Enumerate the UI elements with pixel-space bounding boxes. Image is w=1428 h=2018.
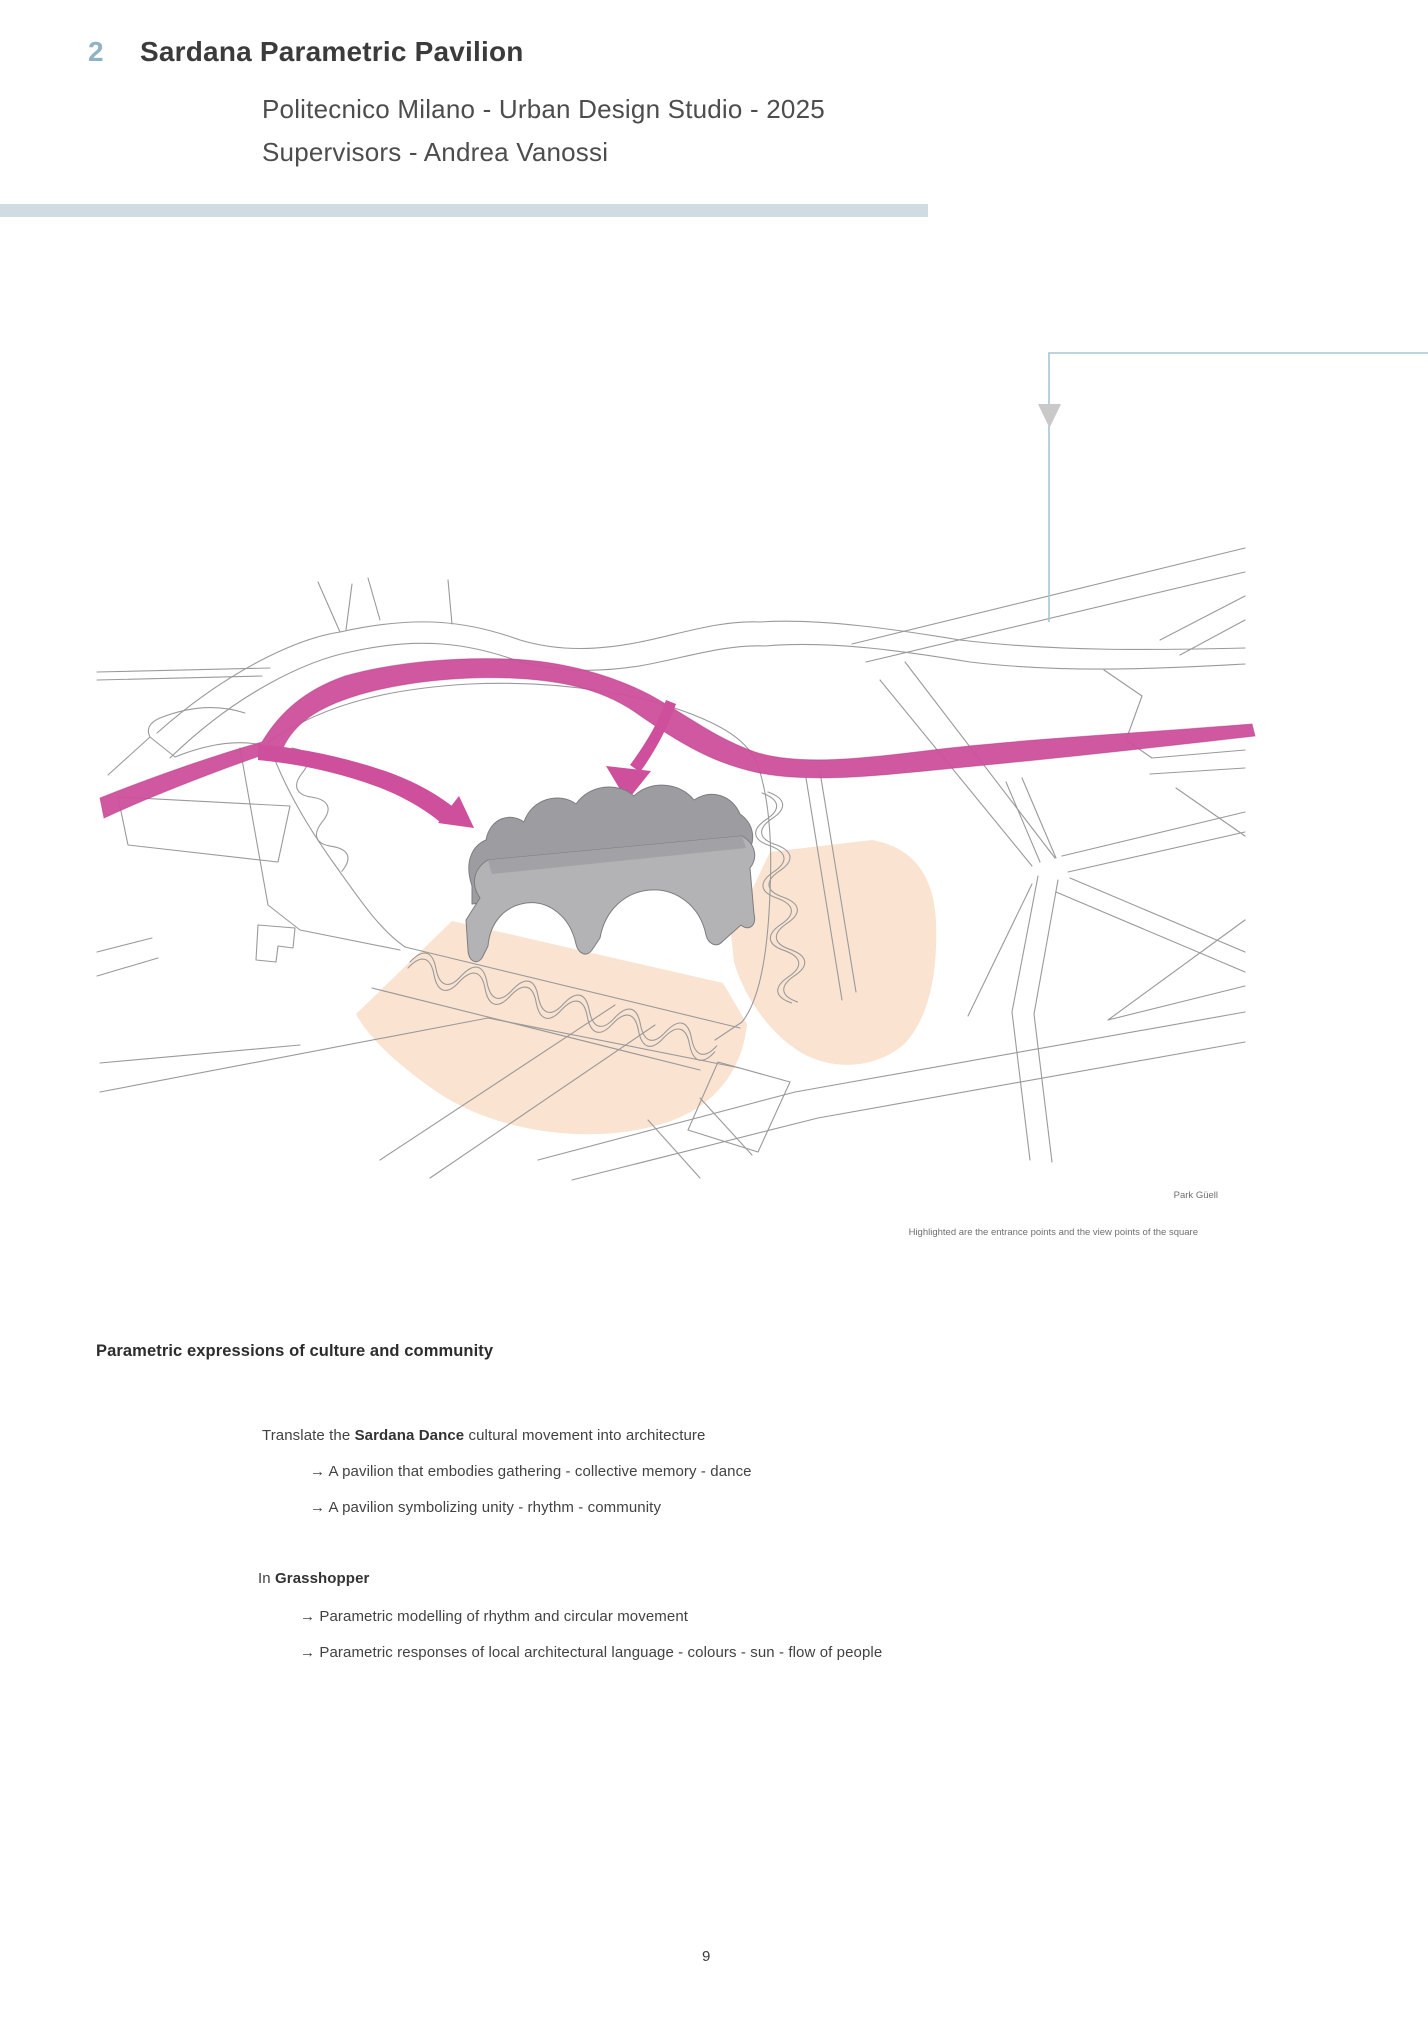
callout-arrow-icon [1038,404,1061,428]
page-number: 9 [702,1948,710,1965]
block2-item: → Parametric responses of local architec… [300,1644,882,1661]
section-heading: Parametric expressions of culture and co… [96,1342,493,1361]
block1-intro-suffix: cultural movement into architecture [464,1427,705,1444]
view-cone-east [731,840,936,1065]
divider-bar [0,204,928,217]
block1-item: → A pavilion that embodies gathering - c… [310,1463,752,1480]
block2-intro: In Grasshopper [258,1570,369,1587]
subtitle-studio: Politecnico Milano - Urban Design Studio… [262,94,825,125]
figure-caption: Highlighted are the entrance points and … [909,1227,1198,1238]
callout [1038,353,1428,622]
figure-location-label: Park Güell [1174,1190,1218,1201]
block1-intro: Translate the Sardana Dance cultural mov… [262,1427,705,1444]
document-page: 2 Sardana Parametric Pavilion Politecnic… [0,0,1428,2018]
block1-intro-prefix: Translate the [262,1427,355,1444]
site-map-figure [0,330,1428,1190]
block2-intro-bold: Grasshopper [275,1570,369,1587]
block1-item: → A pavilion symbolizing unity - rhythm … [310,1499,661,1516]
block2-item: → Parametric modelling of rhythm and cir… [300,1608,688,1625]
block2-intro-prefix: In [258,1570,275,1587]
chapter-number: 2 [88,36,104,68]
entrance-arrow-west [258,744,474,828]
page-title: Sardana Parametric Pavilion [140,36,524,68]
block1-intro-bold: Sardana Dance [355,1427,465,1444]
subtitle-supervisors: Supervisors - Andrea Vanossi [262,137,608,168]
